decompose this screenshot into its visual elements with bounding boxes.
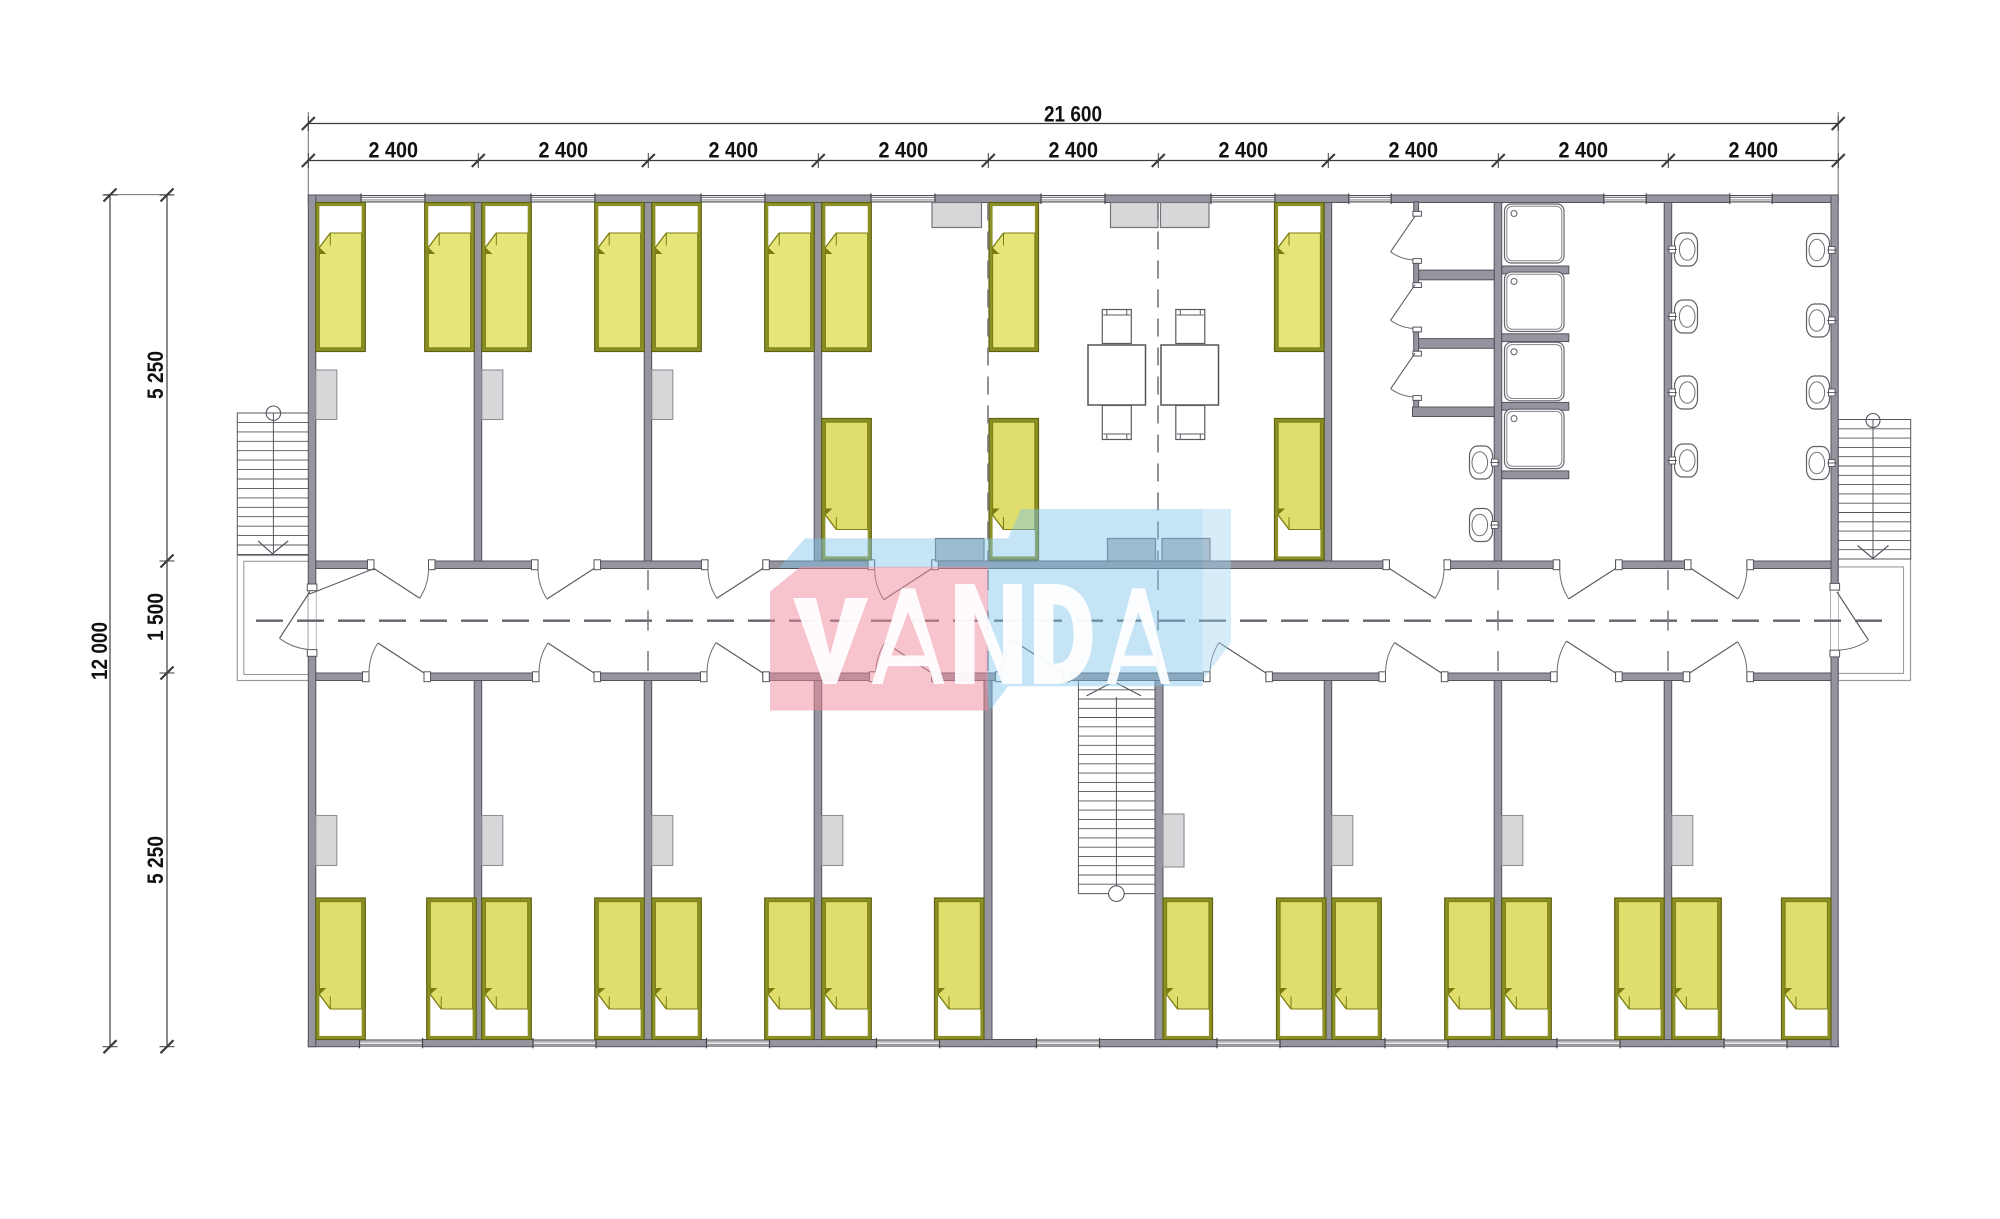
- svg-text:2 400: 2 400: [369, 138, 419, 163]
- svg-text:2 400: 2 400: [1389, 138, 1439, 163]
- svg-text:2 400: 2 400: [1559, 138, 1609, 163]
- svg-text:2 400: 2 400: [1049, 138, 1099, 163]
- svg-text:5 250: 5 250: [143, 351, 168, 399]
- svg-text:1 500: 1 500: [143, 593, 168, 641]
- svg-text:5 250: 5 250: [143, 836, 168, 884]
- svg-text:2 400: 2 400: [539, 138, 589, 163]
- svg-text:2 400: 2 400: [709, 138, 759, 163]
- svg-text:2 400: 2 400: [1729, 138, 1779, 163]
- svg-text:2 400: 2 400: [879, 138, 929, 163]
- svg-text:2 400: 2 400: [1219, 138, 1269, 163]
- svg-text:21 600: 21 600: [1044, 102, 1102, 127]
- svg-text:12 000: 12 000: [87, 622, 112, 680]
